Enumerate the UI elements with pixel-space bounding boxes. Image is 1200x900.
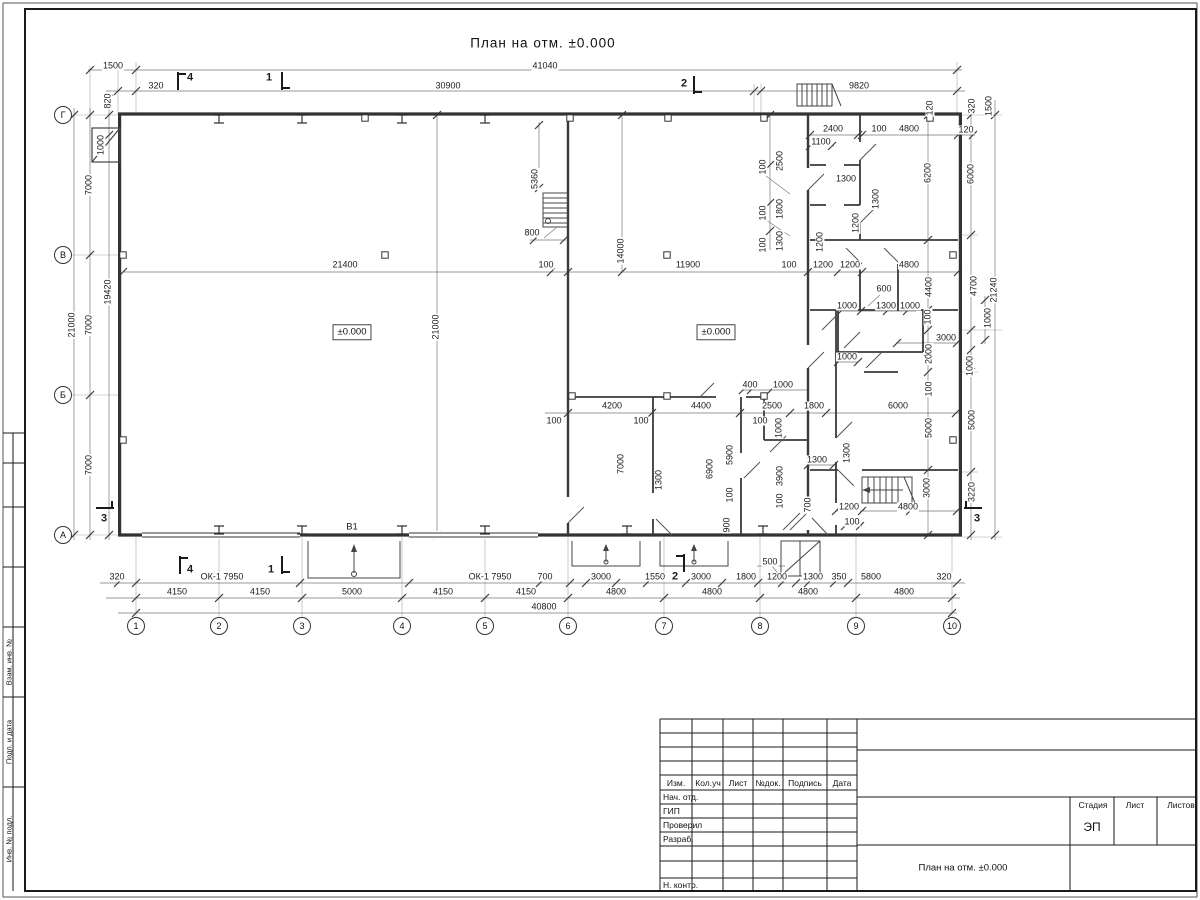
dim-label: 1300 <box>843 442 852 464</box>
frame-attr-label: Подп. и дата <box>4 720 13 764</box>
dim-label: 5360 <box>531 168 540 190</box>
partition-walls-rooms <box>570 114 958 535</box>
titleblock-sign-row: Разраб. <box>663 834 694 844</box>
dim-label: 320 <box>108 573 125 582</box>
titleblock-rev-header: Изм. <box>667 778 685 788</box>
dim-label: 320 <box>935 573 952 582</box>
dim-label: 100 <box>925 380 934 397</box>
dim-label: 100 <box>759 236 768 253</box>
drawing-sheet: План на отм. ±0.000 15004104032030900982… <box>0 0 1200 900</box>
titleblock-rev-header: Подпись <box>788 778 822 788</box>
dim-label: 7000 <box>85 314 94 336</box>
dim-label: 1200 <box>852 212 861 234</box>
axis-marker: Б <box>54 386 72 404</box>
dim-label: 4150 <box>515 588 537 597</box>
dim-label: 9820 <box>848 82 870 91</box>
titleblock-sign-row: ГИП <box>663 806 680 816</box>
stairs-right-icon <box>862 477 915 503</box>
dim-label: 1550 <box>644 573 666 582</box>
dim-label: 1200 <box>816 231 825 253</box>
section-mark-label: 4 <box>186 565 194 576</box>
dim-label: 4400 <box>925 276 934 298</box>
dim-label: 11900 <box>675 261 701 270</box>
dim-label: 1800 <box>803 402 825 411</box>
dim-label: 1300 <box>655 469 664 491</box>
titleblock-sign-row: Н. контр. <box>663 880 698 890</box>
section-mark-label: 2 <box>680 79 688 90</box>
axis-marker: 2 <box>210 617 228 635</box>
dim-label: 2500 <box>761 402 783 411</box>
section-mark-label: 1 <box>265 73 273 84</box>
dim-label: ОК-1 7950 <box>468 573 513 582</box>
axis-marker: В <box>54 246 72 264</box>
dim-label: 700 <box>804 496 813 513</box>
dim-label: 3000 <box>590 573 612 582</box>
axis-marker: 9 <box>847 617 865 635</box>
dim-label: 1300 <box>872 188 881 210</box>
titleblock-stage-value: ЭП <box>1083 820 1100 834</box>
axis-marker: А <box>54 526 72 544</box>
dim-label: 4800 <box>898 261 920 270</box>
dim-label: 100 <box>726 486 735 503</box>
dim-label: 1000 <box>966 355 975 377</box>
section-mark-label: 4 <box>186 73 194 84</box>
dim-label: 700 <box>536 573 553 582</box>
titleblock-rev-header: Лист <box>729 778 747 788</box>
dim-label: 7000 <box>85 454 94 476</box>
dim-label: 4800 <box>797 588 819 597</box>
dim-label: 4800 <box>605 588 627 597</box>
dim-label: 1000 <box>97 134 106 156</box>
dim-label: 100 <box>751 417 768 426</box>
axis-marker: 5 <box>476 617 494 635</box>
dim-label: 1200 <box>838 503 860 512</box>
dim-label: 4800 <box>893 588 915 597</box>
floor-plan-linework <box>0 0 1200 900</box>
dim-label: 5800 <box>860 573 882 582</box>
dim-label: 120 <box>926 99 935 116</box>
dim-label: 1000 <box>836 353 858 362</box>
dim-label: 1300 <box>875 302 897 311</box>
dim-label: 30900 <box>434 82 461 91</box>
dim-label: 4150 <box>166 588 188 597</box>
dim-label: 1300 <box>776 230 785 252</box>
dim-label: 4150 <box>249 588 271 597</box>
axis-marker: 1 <box>127 617 145 635</box>
dim-label: 4800 <box>897 503 919 512</box>
axis-marker: 6 <box>559 617 577 635</box>
dim-label: 6200 <box>924 162 933 184</box>
dim-label: 100 <box>843 518 860 527</box>
titleblock-stage-header: Лист <box>1126 800 1144 810</box>
dim-label: 100 <box>924 308 933 325</box>
stairs-top-icon <box>797 84 841 106</box>
dim-label: 3900 <box>776 465 785 487</box>
dim-label: 4200 <box>601 402 623 411</box>
dim-label: 7000 <box>85 174 94 196</box>
titleblock-doc-title: План на отм. ±0.000 <box>919 863 1008 874</box>
dim-label: 6000 <box>887 402 909 411</box>
dim-label: 800 <box>523 229 540 238</box>
dim-label: 100 <box>776 492 785 509</box>
dim-label: 5000 <box>341 588 363 597</box>
frame-attr-label: Взам. инв. № <box>4 639 13 685</box>
dim-label: 500 <box>761 558 778 567</box>
dim-label: 1300 <box>806 456 828 465</box>
dim-label: 600 <box>875 285 892 294</box>
dim-label: 40800 <box>530 603 557 612</box>
dim-label: 21000 <box>68 311 77 338</box>
dim-label: 4800 <box>701 588 723 597</box>
dim-label: 5000 <box>968 409 977 431</box>
dim-label: 100 <box>545 417 562 426</box>
axis-marker: 4 <box>393 617 411 635</box>
dim-label: 1200 <box>766 573 788 582</box>
sheet-frame <box>3 3 1197 897</box>
level-mark: ±0.000 <box>697 324 736 340</box>
dim-label: 100 <box>632 417 649 426</box>
section-mark-label: 2 <box>671 572 679 583</box>
axis-marker: 7 <box>655 617 673 635</box>
dim-label: ОК-1 7950 <box>200 573 245 582</box>
dim-label: 100 <box>537 261 554 270</box>
dim-label: 1000 <box>899 302 921 311</box>
dim-label: 320 <box>968 97 977 114</box>
titleblock-stage-header: Стадия <box>1079 800 1108 810</box>
dim-label: 120 <box>957 126 974 135</box>
dim-label: 1100 <box>810 138 831 147</box>
section-mark-label: 3 <box>100 514 108 525</box>
dim-label: 5900 <box>726 444 735 466</box>
dim-label: 3220 <box>968 481 977 503</box>
dim-label: 100 <box>759 158 768 175</box>
axis-marker: 10 <box>943 617 961 635</box>
dim-label: 900 <box>723 516 732 533</box>
dim-label: 1300 <box>802 573 824 582</box>
dim-label: 1000 <box>836 302 858 311</box>
dim-label: 1800 <box>735 573 757 582</box>
dim-label: 1800 <box>776 198 785 220</box>
dim-label: 6000 <box>967 163 976 185</box>
dim-label: 2000 <box>925 343 934 365</box>
titleblock-rev-header: Дата <box>833 778 852 788</box>
dim-label: 3000 <box>923 477 932 499</box>
dim-label: 21000 <box>432 313 441 340</box>
dim-label: 100 <box>759 204 768 221</box>
dim-label: 6900 <box>706 458 715 480</box>
dim-label: 320 <box>147 82 164 91</box>
axis-marker: Г <box>54 106 72 124</box>
dim-label: 21240 <box>990 276 999 303</box>
dim-label: 1000 <box>775 417 784 439</box>
section-mark-label: 1 <box>267 565 275 576</box>
titleblock-rev-header: №док. <box>756 778 781 788</box>
dim-label: 41040 <box>531 62 558 71</box>
titleblock-rev-header: Кол.уч <box>695 778 721 788</box>
dim-label: 1000 <box>772 381 794 390</box>
dim-label: 4800 <box>898 125 920 134</box>
dim-label: 5000 <box>925 417 934 439</box>
axis-marker: 3 <box>293 617 311 635</box>
titleblock-sign-row: Проверил <box>663 820 702 830</box>
dim-label: 2400 <box>822 125 844 134</box>
partition-walls-main <box>568 114 808 535</box>
dim-label: 3000 <box>690 573 712 582</box>
titleblock-stage-header: Листов <box>1167 800 1195 810</box>
dim-label: В1 <box>345 522 359 532</box>
dim-label: 4700 <box>970 275 979 297</box>
dim-label: 19420 <box>104 278 113 305</box>
dim-label: 1200 <box>839 261 861 270</box>
dim-label: 350 <box>830 573 847 582</box>
dim-label: 100 <box>780 261 797 270</box>
dim-label: 21400 <box>331 261 358 270</box>
dim-label: 3000 <box>935 334 957 343</box>
dim-label: 2500 <box>776 150 785 172</box>
dim-label: 7000 <box>617 453 626 475</box>
dim-label: 1500 <box>985 95 994 117</box>
dim-label: 4150 <box>432 588 454 597</box>
section-mark-label: 3 <box>973 514 981 525</box>
titleblock-sign-row: Нач. отд. <box>663 792 698 802</box>
dim-label: 1000 <box>984 307 993 329</box>
dim-label: 1200 <box>812 261 834 270</box>
dim-label: 820 <box>104 92 113 109</box>
dim-label: 4400 <box>690 402 712 411</box>
dim-label: 14000 <box>617 237 626 264</box>
level-mark: ±0.000 <box>333 324 372 340</box>
stairs-central-icon <box>543 193 568 227</box>
dim-label: 400 <box>741 381 758 390</box>
frame-attr-label: Инв. № подл. <box>4 816 13 863</box>
dim-label: 100 <box>870 125 887 134</box>
dim-label: 1500 <box>102 62 124 71</box>
axis-marker: 8 <box>751 617 769 635</box>
dim-label: 1300 <box>835 175 857 184</box>
drawing-title: План на отм. ±0.000 <box>470 36 615 51</box>
